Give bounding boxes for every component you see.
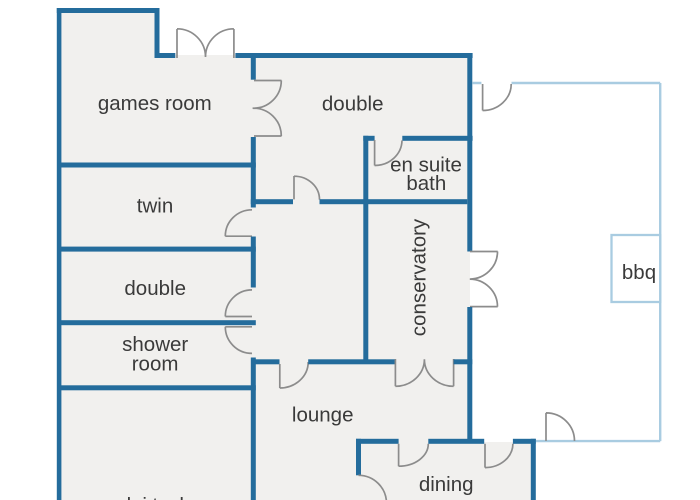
- svg-text:conservatory: conservatory: [408, 218, 431, 336]
- svg-text:double: double: [322, 93, 384, 116]
- svg-text:dining: dining: [419, 473, 474, 496]
- svg-text:twin: twin: [137, 195, 173, 218]
- svg-text:games room: games room: [98, 92, 212, 115]
- svg-text:bbq: bbq: [622, 261, 656, 284]
- svg-text:double: double: [124, 277, 186, 300]
- svg-text:room: room: [132, 353, 179, 376]
- svg-text:bath: bath: [406, 172, 446, 195]
- svg-text:kitchen: kitchen: [127, 494, 230, 500]
- svg-text:lounge: lounge: [292, 404, 354, 427]
